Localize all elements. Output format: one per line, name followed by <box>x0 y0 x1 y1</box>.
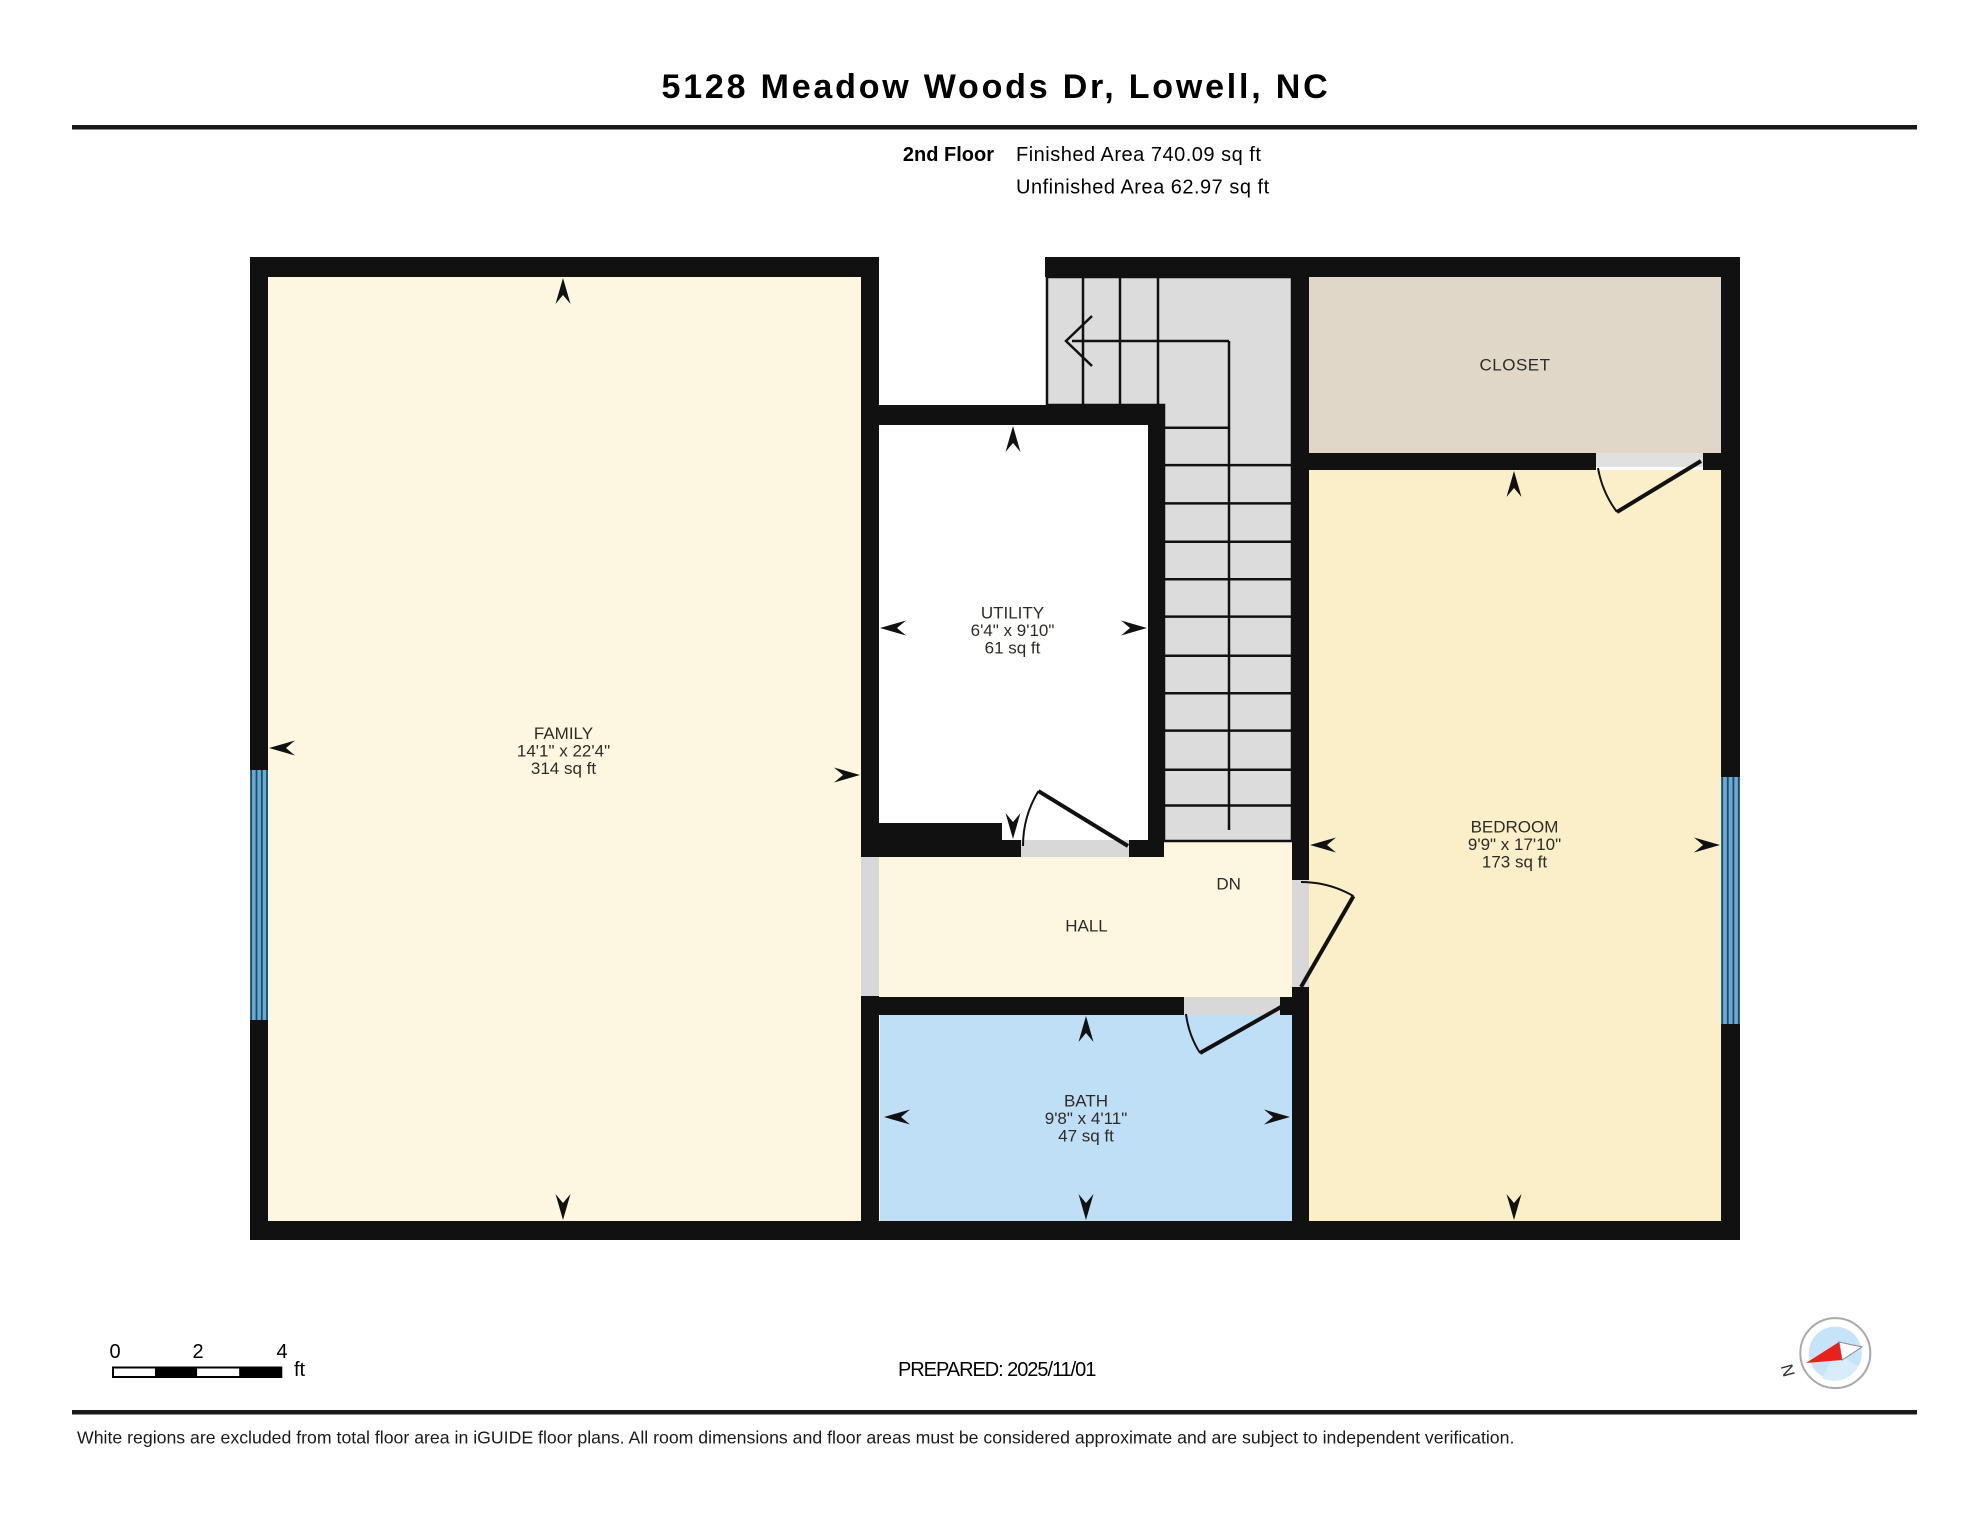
svg-text:PREPARED: 2025/11/01: PREPARED: 2025/11/01 <box>898 1359 1096 1381</box>
svg-text:UTILITY: UTILITY <box>981 604 1044 623</box>
svg-text:HALL: HALL <box>1065 917 1108 936</box>
svg-text:47 sq ft: 47 sq ft <box>1058 1127 1114 1146</box>
svg-text:2nd Floor: 2nd Floor <box>903 144 994 166</box>
svg-text:61 sq ft: 61 sq ft <box>985 639 1041 658</box>
svg-text:9'9" x 17'10": 9'9" x 17'10" <box>1468 835 1561 854</box>
svg-text:Finished Area 740.09 sq ft: Finished Area 740.09 sq ft <box>1016 144 1261 166</box>
svg-text:4: 4 <box>276 1341 287 1363</box>
svg-text:CLOSET: CLOSET <box>1479 356 1550 375</box>
svg-text:ft: ft <box>294 1359 306 1381</box>
svg-text:9'8" x 4'11": 9'8" x 4'11" <box>1045 1109 1128 1128</box>
svg-text:0: 0 <box>109 1341 120 1363</box>
svg-text:173 sq ft: 173 sq ft <box>1482 853 1547 872</box>
svg-text:314 sq ft: 314 sq ft <box>531 759 596 778</box>
svg-text:2: 2 <box>192 1341 203 1363</box>
svg-text:14'1" x 22'4": 14'1" x 22'4" <box>517 742 610 761</box>
svg-text:DN: DN <box>1216 875 1241 894</box>
svg-text:White regions are excluded fro: White regions are excluded from total fl… <box>77 1428 1514 1448</box>
svg-text:FAMILY: FAMILY <box>534 724 593 743</box>
svg-text:Unfinished Area 62.97 sq ft: Unfinished Area 62.97 sq ft <box>1016 177 1270 199</box>
svg-text:BEDROOM: BEDROOM <box>1471 818 1559 837</box>
svg-text:5128 Meadow Woods Dr, Lowell,: 5128 Meadow Woods Dr, Lowell, NC <box>662 68 1331 106</box>
svg-text:BATH: BATH <box>1064 1092 1108 1111</box>
svg-text:6'4" x 9'10": 6'4" x 9'10" <box>971 621 1055 640</box>
